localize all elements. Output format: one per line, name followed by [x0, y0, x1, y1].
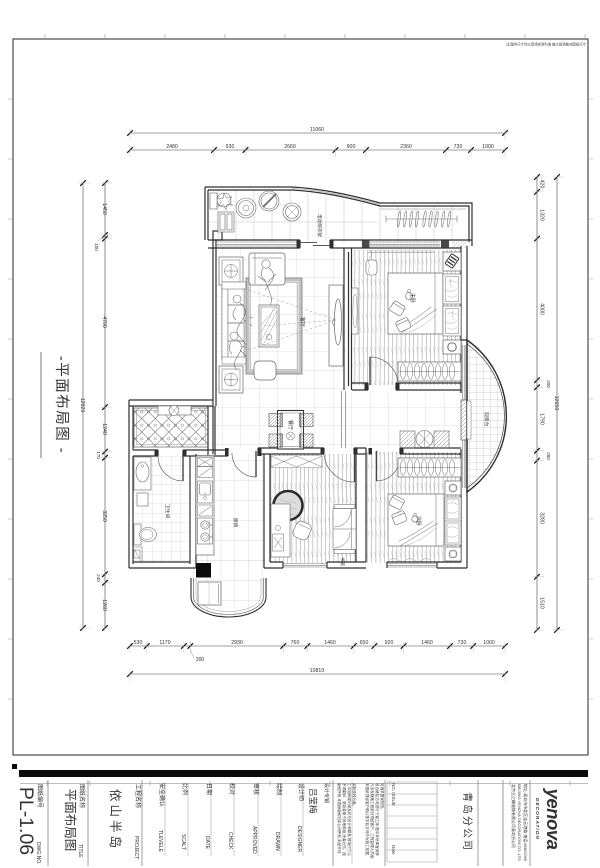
svg-text:3250: 3250 [101, 510, 107, 522]
svg-text:工中如有疑问请及时与设计师联系,现场尺寸以: 工中如有疑问请及时与设计师联系,现场尺寸以 [347, 783, 352, 856]
svg-text:420: 420 [539, 180, 545, 189]
svg-text:APPROVED: APPROVED [251, 826, 257, 854]
svg-text:收合格后方可进行下道工序,图中未尽事宜请参: 收合格后方可进行下道工序,图中未尽事宜请参 [375, 783, 380, 856]
svg-text:设计师: 设计师 [297, 783, 305, 801]
svg-text:240: 240 [96, 574, 101, 582]
svg-text:1260: 1260 [101, 599, 107, 611]
svg-text:DECORATION: DECORATION [534, 798, 540, 840]
svg-text:绘制: 绘制 [275, 783, 283, 795]
svg-text:TITLE: TITLE [77, 844, 83, 858]
svg-text:注:图中尺寸均以现场实测为准 施工前请核对图纸尺寸: 注:图中尺寸均以现场实测为准 施工前请核对图纸尺寸 [506, 42, 586, 47]
svg-text:客厅: 客厅 [299, 317, 306, 327]
svg-text:SCALT: SCALT [180, 834, 186, 850]
svg-text:青岛分公司: 青岛分公司 [461, 792, 474, 852]
svg-text:安全确认: 安全确认 [158, 783, 166, 807]
svg-text:1320: 1320 [539, 209, 545, 221]
svg-text:餐厅: 餐厅 [287, 420, 294, 430]
svg-text:760: 760 [291, 640, 300, 646]
svg-text:图纸编号: 图纸编号 [36, 784, 44, 808]
svg-text:北京业之峰装饰有限公司青岛分公司: 北京业之峰装饰有限公司青岛分公司 [511, 784, 517, 848]
svg-text:11060: 11060 [310, 127, 324, 133]
svg-text:Date: Date [391, 845, 396, 855]
svg-text:12920: 12920 [79, 398, 85, 413]
svg-text:依山半岛: 依山半岛 [108, 789, 123, 851]
svg-text:凡涉及隐蔽工程部分须经客户、工程监理人员验: 凡涉及隐蔽工程部分须经客户、工程监理人员验 [370, 783, 375, 859]
svg-text:见相关国家规范。: 见相关国家规范。 [380, 783, 385, 812]
svg-text:4000: 4000 [539, 303, 545, 315]
svg-text:1170: 1170 [159, 640, 170, 646]
svg-text:930: 930 [226, 144, 235, 150]
svg-text:日期: 日期 [205, 783, 213, 795]
svg-text:12650: 12650 [553, 396, 559, 411]
svg-text:2930: 2930 [231, 640, 243, 646]
svg-text:电动晾衣架: 电动晾衣架 [316, 214, 323, 237]
svg-text:厨房: 厨房 [232, 518, 239, 528]
svg-text:DATE: DATE [204, 836, 210, 850]
svg-text:3280: 3280 [539, 512, 545, 524]
svg-text:比例: 比例 [181, 783, 189, 795]
svg-text:1240: 1240 [101, 423, 107, 435]
svg-text:530: 530 [134, 640, 143, 646]
svg-text:-平面布局图 -: -平面布局图 - [53, 356, 70, 454]
svg-text:设计专销: 设计专销 [323, 783, 330, 803]
svg-text:730: 730 [458, 640, 467, 646]
svg-text:不得翻印、复制或用于其他用途,违者必究。施: 不得翻印、复制或用于其他用途,违者必究。施 [342, 783, 347, 856]
svg-text:吕莹梅: 吕莹梅 [308, 788, 318, 814]
svg-text:900: 900 [347, 144, 356, 150]
svg-text:CHECK: CHECK [227, 832, 233, 850]
svg-text:主卧: 主卧 [409, 293, 416, 303]
svg-text:本图纸须经客户确认签字后方可作为施工依据,: 本图纸须经客户确认签字后方可作为施工依据, [365, 783, 370, 856]
svg-text:工程名称: 工程名称 [134, 784, 142, 808]
svg-text:280: 280 [546, 452, 551, 460]
svg-text:图纸名称: 图纸名称 [78, 784, 86, 808]
svg-text:1460: 1460 [324, 640, 336, 646]
svg-text:观景台: 观景台 [483, 412, 490, 427]
svg-text:书房: 书房 [339, 557, 346, 567]
svg-text:650: 650 [360, 640, 369, 646]
svg-text:BEIJING YENOVA DECORATION CO.,: BEIJING YENOVA DECORATION CO.,LTD [517, 784, 522, 861]
svg-text:平面布局图: 平面布局图 [63, 789, 77, 852]
svg-text:1000: 1000 [482, 144, 494, 150]
svg-text:1000: 1000 [483, 640, 495, 646]
svg-text:170: 170 [96, 451, 101, 459]
svg-text:TLEVELE: TLEVELE [157, 830, 163, 853]
svg-text:100: 100 [94, 243, 99, 251]
svg-text:10810: 10810 [310, 668, 325, 674]
svg-text:1460: 1460 [421, 640, 433, 646]
svg-text:yenova: yenova [543, 788, 564, 850]
svg-text:2480: 2480 [166, 144, 178, 150]
svg-text:200: 200 [546, 380, 551, 388]
svg-text:卫生间: 卫生间 [164, 504, 171, 519]
svg-text:PROJECT: PROJECT [133, 836, 139, 859]
svg-text:NO. ISSUE: NO. ISSUE [391, 783, 396, 806]
svg-text:4700: 4700 [101, 316, 107, 328]
svg-text:2360: 2360 [400, 144, 412, 150]
svg-text:PL-1.06: PL-1.06 [15, 787, 37, 855]
svg-text:次卧: 次卧 [415, 516, 422, 526]
svg-text:1510: 1510 [539, 597, 545, 609]
svg-text:920: 920 [385, 640, 394, 646]
svg-text:版权所有:本图纸版权归本公司所有,未经许可: 版权所有:本图纸版权归本公司所有,未经许可 [337, 783, 342, 854]
svg-text:地址:青岛市市北区连云港路 电话:85803399: 地址:青岛市市北区连云港路 电话:85803399 [523, 784, 529, 862]
svg-text:1450: 1450 [101, 203, 107, 215]
svg-text:DESIGNER: DESIGNER [296, 826, 302, 853]
svg-text:DRAWN: DRAWN [274, 832, 280, 851]
svg-text:实际放线为准。: 实际放线为准。 [352, 783, 357, 808]
svg-text:200: 200 [196, 657, 205, 663]
svg-text:校对: 校对 [228, 783, 236, 795]
svg-text:2660: 2660 [284, 144, 296, 150]
svg-text:1790: 1790 [539, 413, 545, 425]
svg-text:DWG.NO.: DWG.NO. [35, 842, 41, 865]
svg-text:730: 730 [454, 144, 463, 150]
svg-text:审核: 审核 [252, 783, 260, 795]
